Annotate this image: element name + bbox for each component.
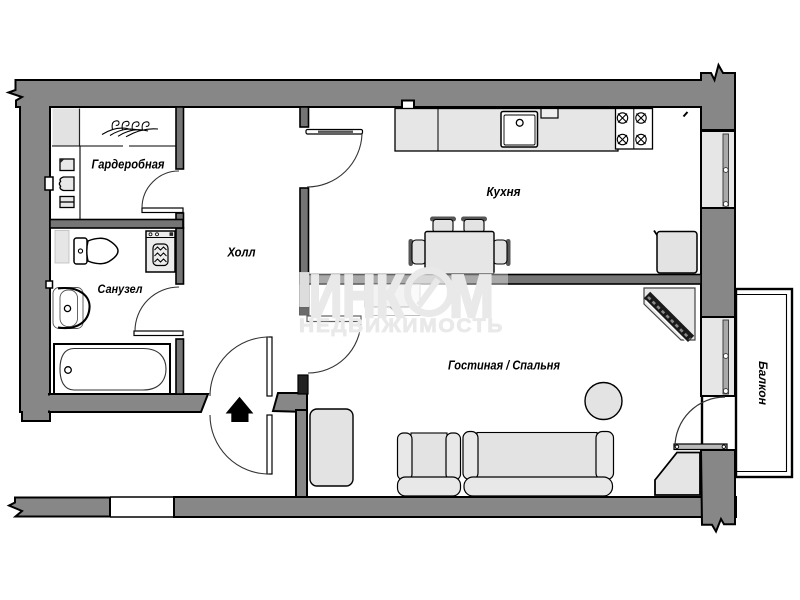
svg-text:НЕДВИЖИМОСТЬ: НЕДВИЖИМОСТЬ (299, 316, 504, 337)
svg-text:Балкон: Балкон (756, 361, 770, 406)
svg-text:Кухня: Кухня (487, 184, 521, 199)
svg-text:Гостиная / Спальня: Гостиная / Спальня (448, 358, 560, 373)
svg-text:Гардеробная: Гардеробная (92, 158, 166, 172)
svg-text:Холл: Холл (227, 245, 256, 260)
svg-text:Санузел: Санузел (98, 282, 143, 296)
